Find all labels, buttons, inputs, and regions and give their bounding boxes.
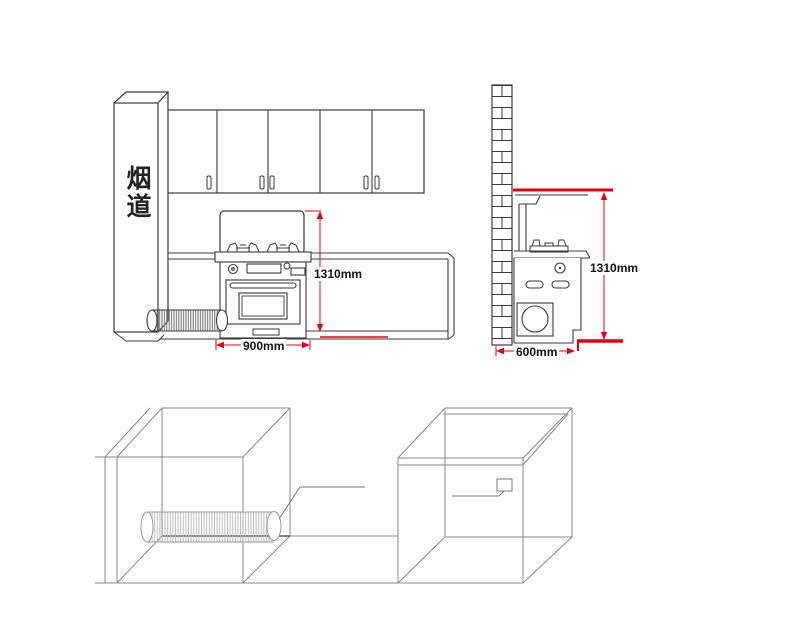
port-leader-line [452, 491, 504, 496]
wireframe-box-right [398, 408, 572, 583]
stove-side-body [514, 258, 581, 343]
duct-outlet-port [497, 479, 512, 491]
wireframe-box-left [95, 408, 290, 583]
installation-diagram: 烟道 1310mm 900mm 1310mm 600mm [0, 0, 790, 628]
stove-backsplash [220, 211, 304, 254]
duct-3d-view [95, 408, 572, 583]
stove-body [220, 262, 306, 338]
front-height-dimension: 1310mm [312, 267, 364, 281]
upper-cabinets [165, 110, 424, 193]
front-width-dimension: 900mm [241, 339, 286, 353]
diagram-linework [0, 0, 790, 628]
front-view [114, 92, 454, 350]
exhaust-duct-3d [141, 487, 365, 542]
stove-cooktop [215, 252, 311, 262]
side-height-dimension: 1310mm [588, 261, 640, 275]
side-depth-dimension: 600mm [514, 345, 559, 359]
burner-side [530, 240, 568, 252]
duct-leader-line [279, 487, 365, 519]
brick-wall [492, 85, 512, 345]
floor-lines [95, 536, 523, 583]
side-view [492, 85, 623, 356]
flue-duct-label: 烟道 [123, 165, 151, 221]
exhaust-duct-front [147, 310, 228, 331]
